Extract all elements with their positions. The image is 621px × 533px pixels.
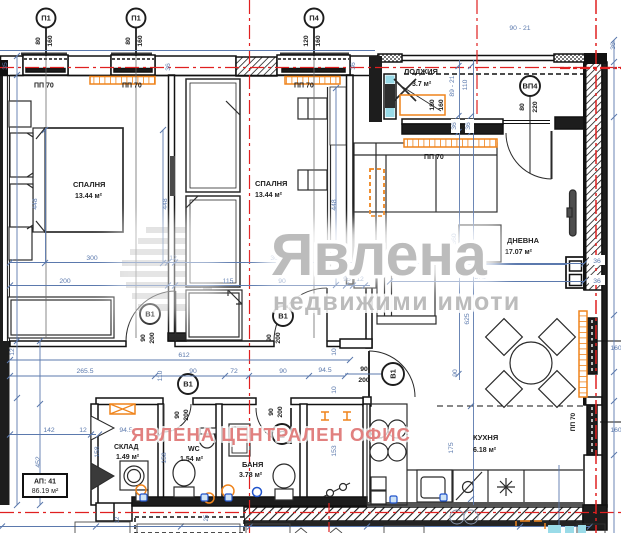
svg-text:В1: В1 [389, 369, 398, 379]
svg-text:200: 200 [275, 332, 282, 344]
svg-text:90: 90 [174, 411, 181, 419]
svg-text:10: 10 [331, 348, 338, 356]
svg-text:175: 175 [448, 442, 455, 454]
svg-text:160: 160 [610, 345, 621, 352]
svg-text:36: 36 [593, 258, 601, 265]
svg-text:160: 160 [438, 99, 445, 111]
svg-text:200: 200 [59, 278, 71, 285]
svg-text:90: 90 [268, 408, 275, 416]
svg-text:ПП 70: ПП 70 [294, 83, 314, 90]
svg-text:ВП4: ВП4 [523, 82, 539, 91]
svg-text:13.44 м²: 13.44 м² [255, 192, 283, 199]
svg-text:П1: П1 [41, 14, 51, 23]
svg-text:ДНЕВНА: ДНЕВНА [507, 236, 540, 245]
svg-text:36: 36 [610, 42, 617, 50]
svg-text:158: 158 [94, 446, 101, 458]
svg-text:80: 80 [519, 103, 526, 111]
svg-text:90 - 21: 90 - 21 [509, 25, 530, 32]
svg-text:90: 90 [189, 368, 197, 375]
svg-text:36: 36 [451, 122, 458, 130]
svg-text:17.07 м²: 17.07 м² [505, 249, 533, 256]
svg-text:86.19 м²: 86.19 м² [32, 488, 59, 495]
svg-text:АП: 41: АП: 41 [34, 479, 56, 486]
svg-text:300: 300 [86, 255, 98, 262]
svg-text:120: 120 [303, 35, 310, 47]
svg-text:1.49 м²: 1.49 м² [116, 454, 140, 461]
svg-text:ЛОДЖИЯ: ЛОДЖИЯ [404, 67, 438, 76]
svg-text:35: 35 [2, 62, 9, 70]
svg-text:90: 90 [360, 366, 368, 373]
svg-text:6.18 м²: 6.18 м² [473, 447, 497, 454]
svg-text:36: 36 [465, 122, 472, 130]
svg-text:200: 200 [183, 409, 190, 421]
svg-text:448: 448 [162, 198, 169, 210]
svg-text:КУХНЯ: КУХНЯ [473, 433, 498, 442]
svg-text:160: 160 [47, 35, 54, 47]
svg-text:115: 115 [223, 278, 234, 285]
svg-text:89 - 21: 89 - 21 [449, 75, 456, 96]
svg-text:153: 153 [331, 445, 338, 457]
svg-text:36: 36 [593, 278, 601, 285]
svg-text:612: 612 [178, 352, 190, 359]
svg-text:265.5: 265.5 [76, 368, 93, 375]
svg-text:П4: П4 [309, 14, 319, 23]
svg-text:В1: В1 [183, 380, 193, 389]
svg-text:220: 220 [532, 101, 539, 113]
svg-text:452: 452 [35, 456, 42, 468]
svg-text:80: 80 [35, 37, 42, 45]
svg-text:БАНЯ: БАНЯ [242, 460, 263, 469]
svg-text:Явлена: Явлена [271, 222, 488, 288]
svg-text:WC: WC [188, 446, 200, 453]
svg-text:12: 12 [115, 516, 121, 523]
svg-text:200: 200 [277, 406, 284, 418]
svg-text:200: 200 [149, 332, 156, 344]
svg-text:90: 90 [140, 334, 147, 342]
svg-text:180: 180 [429, 99, 436, 111]
svg-text:3.78 м²: 3.78 м² [239, 472, 263, 479]
svg-text:448: 448 [331, 199, 338, 211]
svg-text:25: 25 [204, 514, 210, 521]
svg-text:12: 12 [9, 348, 16, 356]
svg-text:ПП 70: ПП 70 [424, 154, 444, 161]
svg-text:10: 10 [331, 386, 338, 394]
svg-text:СПАЛНЯ: СПАЛНЯ [73, 180, 105, 189]
svg-text:110: 110 [157, 370, 164, 381]
svg-text:ПП 70: ПП 70 [34, 83, 54, 90]
svg-text:158: 158 [161, 452, 168, 464]
svg-text:П1: П1 [131, 14, 141, 23]
svg-text:90: 90 [279, 368, 287, 375]
svg-text:160: 160 [315, 35, 322, 47]
svg-text:200: 200 [358, 377, 370, 384]
svg-text:недвижими имоти: недвижими имоти [273, 288, 521, 316]
svg-text:160: 160 [610, 427, 621, 434]
svg-text:36: 36 [165, 63, 172, 71]
svg-text:110: 110 [462, 79, 469, 90]
svg-text:72: 72 [230, 368, 238, 375]
svg-text:ПП 70: ПП 70 [570, 412, 577, 431]
svg-text:142: 142 [43, 427, 55, 434]
svg-text:90: 90 [452, 369, 459, 377]
svg-text:ПП 70: ПП 70 [122, 83, 142, 90]
svg-text:448: 448 [32, 198, 39, 210]
svg-text:1.54 м²: 1.54 м² [180, 456, 204, 463]
svg-text:СКЛАД: СКЛАД [114, 444, 139, 451]
svg-text:12: 12 [79, 427, 87, 434]
svg-text:80: 80 [125, 37, 132, 45]
svg-text:13.44 м²: 13.44 м² [75, 193, 103, 200]
svg-text:94.5: 94.5 [318, 367, 331, 374]
svg-text:36: 36 [350, 62, 357, 70]
svg-text:160: 160 [137, 35, 144, 47]
svg-text:90: 90 [266, 334, 273, 342]
svg-text:СПАЛНЯ: СПАЛНЯ [255, 179, 287, 188]
svg-text:3.7 м²: 3.7 м² [412, 81, 432, 88]
svg-text:ЯВЛЕНА ЦЕНТРАЛЕН ОФИС: ЯВЛЕНА ЦЕНТРАЛЕН ОФИС [131, 424, 411, 445]
